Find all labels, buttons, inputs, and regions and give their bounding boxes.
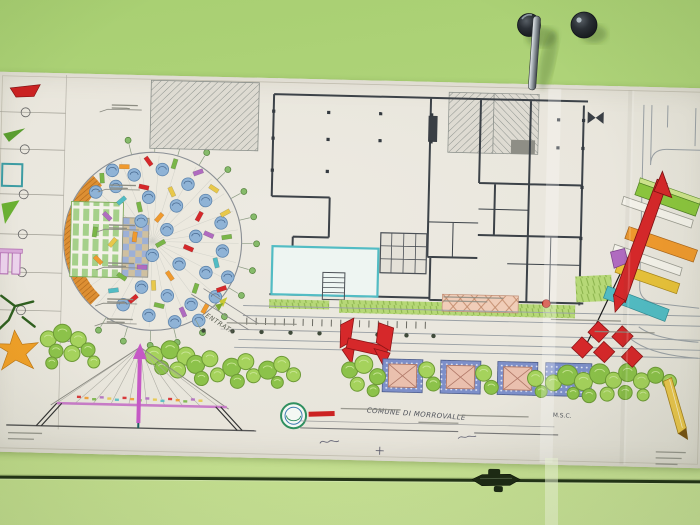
confetti-tree (135, 281, 148, 294)
tree (367, 384, 379, 396)
confetti-chip (100, 173, 105, 183)
confetti-tree (135, 215, 148, 228)
pencil-sculpture (662, 377, 689, 440)
tree (210, 368, 224, 382)
tree (647, 367, 663, 383)
light-dot (238, 292, 244, 298)
confetti-tree (160, 223, 173, 236)
elevation-drawing (6, 340, 258, 431)
confetti-tree (215, 217, 228, 230)
microtext-line (656, 451, 686, 453)
plan-sheet: ENTRATA (0, 72, 700, 469)
confetti-tree (142, 309, 155, 322)
column-dot (580, 186, 583, 189)
confetti-tree (146, 249, 159, 262)
legend-red-canopy (10, 84, 40, 98)
confetti-tree (192, 314, 205, 327)
case-frame-rail (0, 476, 700, 484)
column-dot (271, 137, 274, 140)
light-dot (254, 241, 260, 247)
tree (582, 389, 596, 403)
confetti-tree (199, 266, 212, 279)
legend-teal-basin (2, 164, 23, 186)
deck-line (57, 403, 227, 407)
tree (64, 345, 80, 361)
column-dot (379, 112, 382, 115)
confetti-chip (137, 265, 147, 270)
confetti-tree (106, 164, 119, 177)
tree (274, 356, 290, 372)
tape-over-rail (545, 458, 558, 525)
tree (286, 368, 300, 382)
signature-squiggle (320, 440, 339, 443)
shaft-block (428, 116, 438, 142)
light-dot (125, 137, 131, 143)
confetti-tree (189, 230, 202, 243)
tree (46, 357, 58, 369)
tape-strip (540, 89, 562, 463)
microtext-line (8, 432, 42, 434)
red-marker-stroke (309, 411, 335, 417)
column-dot (378, 139, 381, 142)
stair-core (380, 233, 427, 274)
confetti-tree (199, 194, 212, 207)
photo-of-site-plan-on-wall: ENTRATA (0, 0, 700, 525)
entrance-label: ENTRATA (204, 312, 236, 336)
hatched-ramp-left (448, 92, 494, 153)
leader-line (100, 109, 142, 113)
door-knob (571, 12, 597, 38)
confetti-tree (182, 178, 195, 191)
legend-column (0, 74, 67, 430)
plaza (61, 132, 262, 351)
tree (230, 374, 244, 388)
tree (475, 365, 491, 381)
tree (567, 387, 579, 399)
confetti-tree (109, 180, 122, 193)
tree (637, 389, 649, 401)
column-dot (581, 147, 584, 150)
confetti-tree (128, 168, 141, 181)
tree (194, 371, 208, 385)
confetti-tree (216, 245, 229, 258)
confetti-tree (170, 199, 183, 212)
pool-basin (271, 246, 378, 296)
tree (81, 343, 95, 357)
microtext-line (656, 457, 682, 459)
light-dot (95, 327, 101, 333)
stall (382, 359, 423, 393)
tree (600, 387, 614, 401)
legend-pink-portal (0, 249, 22, 275)
light-dot (120, 338, 126, 344)
rail-latch (470, 465, 525, 496)
tree (238, 353, 254, 369)
column-dot (272, 110, 275, 113)
tree (271, 376, 283, 388)
tree (527, 370, 543, 386)
legend-orange-star (0, 330, 38, 371)
microtext-line (459, 415, 529, 418)
tree (202, 351, 218, 367)
microtext-line (227, 322, 297, 325)
light-dot (241, 188, 247, 194)
tree (369, 368, 385, 384)
msc-label: M.S.C. (552, 412, 571, 420)
round-stamp (281, 403, 307, 429)
confetti-tree (168, 315, 181, 328)
column-dot (326, 170, 329, 173)
tree (53, 324, 71, 342)
plan-title: COMUNE DI MORROVALLE (366, 406, 466, 422)
stall (440, 360, 481, 394)
confetti-chip (151, 280, 156, 290)
hatched-steps-area (150, 80, 260, 151)
confetti-chip (119, 164, 129, 169)
confetti-tree (117, 298, 130, 311)
confetti-tree (221, 271, 234, 284)
confetti-tree (89, 186, 102, 199)
landing-slab (511, 140, 535, 155)
column-dot (579, 237, 582, 240)
case-door-hardware (500, 0, 630, 115)
confetti-tree (161, 289, 174, 302)
site-plan-drawing: ENTRATA (0, 72, 700, 469)
plus-mark (376, 447, 384, 455)
microtext-line (8, 438, 34, 440)
light-dot (204, 149, 210, 155)
red-diamond (594, 341, 615, 362)
legend-green-sail (1, 200, 20, 224)
tree (426, 377, 440, 391)
column-dot (430, 113, 433, 116)
light-dot (251, 214, 257, 220)
confetti-tree (156, 163, 169, 176)
tree (49, 344, 63, 358)
tree (88, 356, 100, 368)
legend-green-leaf (3, 128, 25, 143)
light-dot (249, 268, 255, 274)
column-dot (429, 140, 432, 143)
column-dot (582, 119, 585, 122)
confetti-tree (142, 191, 155, 204)
tree (418, 362, 434, 378)
confetti-tree (173, 258, 186, 271)
microtext-line (551, 319, 621, 322)
column-dot (327, 111, 330, 114)
tree (350, 377, 364, 391)
confetti-tree (185, 298, 198, 311)
column-dot (326, 138, 329, 141)
light-dot (225, 166, 231, 172)
column-dot (271, 169, 274, 172)
red-diamond-cluster (571, 321, 643, 368)
tree (355, 355, 373, 373)
tree (484, 380, 498, 394)
